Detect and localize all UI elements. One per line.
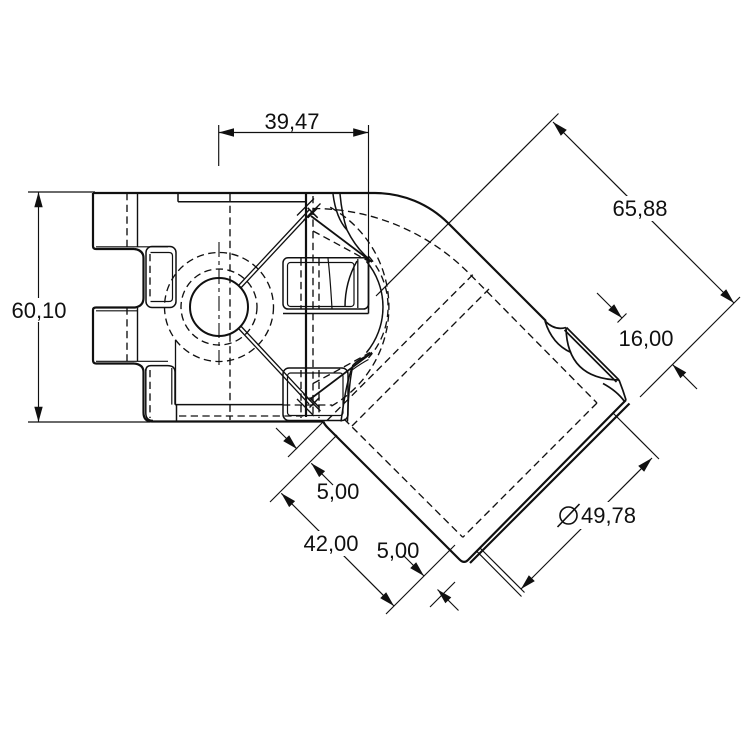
svg-text:65,88: 65,88 [612, 196, 667, 221]
svg-text:49,78: 49,78 [581, 503, 636, 528]
svg-text:39,47: 39,47 [264, 109, 319, 134]
svg-text:60,10: 60,10 [11, 298, 66, 323]
svg-text:5,00: 5,00 [377, 538, 420, 563]
svg-text:42,00: 42,00 [303, 531, 358, 556]
svg-text:16,00: 16,00 [618, 326, 673, 351]
svg-text:5,00: 5,00 [317, 479, 360, 504]
